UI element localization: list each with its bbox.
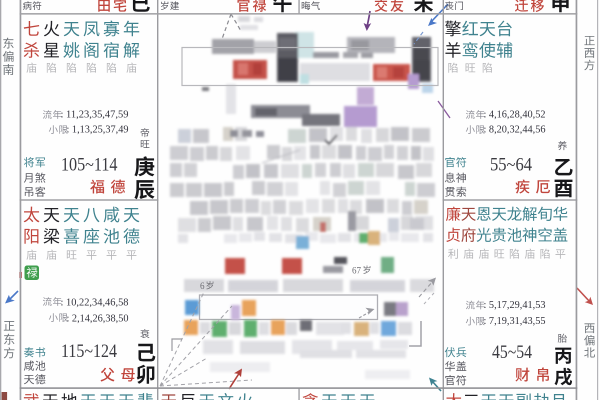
svg-text:55~64: 55~64 [490, 156, 532, 176]
svg-text:: 11,23,35,47,59: : 11,23,35,47,59 [61, 108, 129, 120]
svg-text:45~54: 45~54 [492, 343, 532, 363]
svg-text:6: 6 [200, 281, 205, 291]
svg-text:: 1,13,25,37,49: : 1,13,25,37,49 [67, 124, 129, 136]
svg-text:: 8,20,32,44,56: : 8,20,32,44,56 [484, 124, 546, 136]
svg-text:: 2,14,26,38,50: : 2,14,26,38,50 [67, 312, 129, 324]
svg-text:: 4,16,28,40,52: : 4,16,28,40,52 [484, 108, 546, 120]
svg-text:: 7,19,31,43,55: : 7,19,31,43,55 [484, 315, 546, 327]
svg-text:115~124: 115~124 [61, 342, 117, 362]
svg-text:: 10,22,34,46,58: : 10,22,34,46,58 [61, 296, 129, 308]
svg-text:: 5,17,29,41,53: : 5,17,29,41,53 [484, 299, 546, 311]
svg-text:105~114: 105~114 [61, 156, 118, 176]
svg-text:67: 67 [352, 266, 362, 276]
